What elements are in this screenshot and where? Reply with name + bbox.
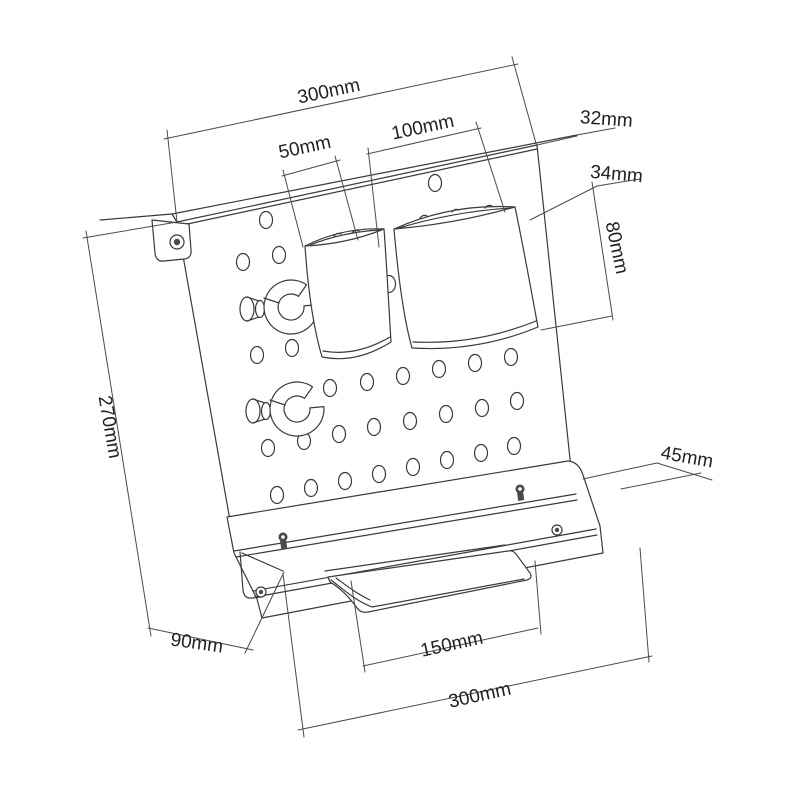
dim-top-lip — [537, 128, 615, 145]
dim-label-panel-height: 270mm — [94, 394, 126, 460]
mount-tab — [152, 220, 191, 261]
dim-label-large-cup: 100mm — [390, 111, 456, 145]
dim-label-top-lip: 32mm — [579, 107, 633, 132]
cable-hook-icon — [246, 382, 324, 436]
dim-label-cup-depth: 34mm — [589, 162, 643, 188]
dim-label-shelf-left: 90mm — [169, 629, 224, 657]
dim-label-top-width: 300mm — [296, 75, 362, 109]
large-cup — [394, 205, 538, 348]
diagram-canvas: 300mm 50mm 100mm 32mm 34mm 80mm 270mm 90… — [0, 0, 800, 800]
dim-label-shelf-right: 45mm — [659, 443, 715, 473]
cable-hook-icon — [240, 280, 318, 334]
dimension-labels: 300mm 50mm 100mm 32mm 34mm 80mm 270mm 90… — [94, 75, 715, 713]
dim-panel-height — [83, 222, 177, 636]
dim-label-small-cup: 50mm — [277, 132, 333, 164]
technical-drawing: 300mm 50mm 100mm 32mm 34mm 80mm 270mm 90… — [0, 0, 800, 800]
dim-label-bottom-width: 300mm — [447, 679, 513, 713]
small-cup — [305, 229, 391, 359]
dim-label-cradle: 150mm — [419, 628, 485, 662]
dim-cup-height — [541, 182, 613, 330]
